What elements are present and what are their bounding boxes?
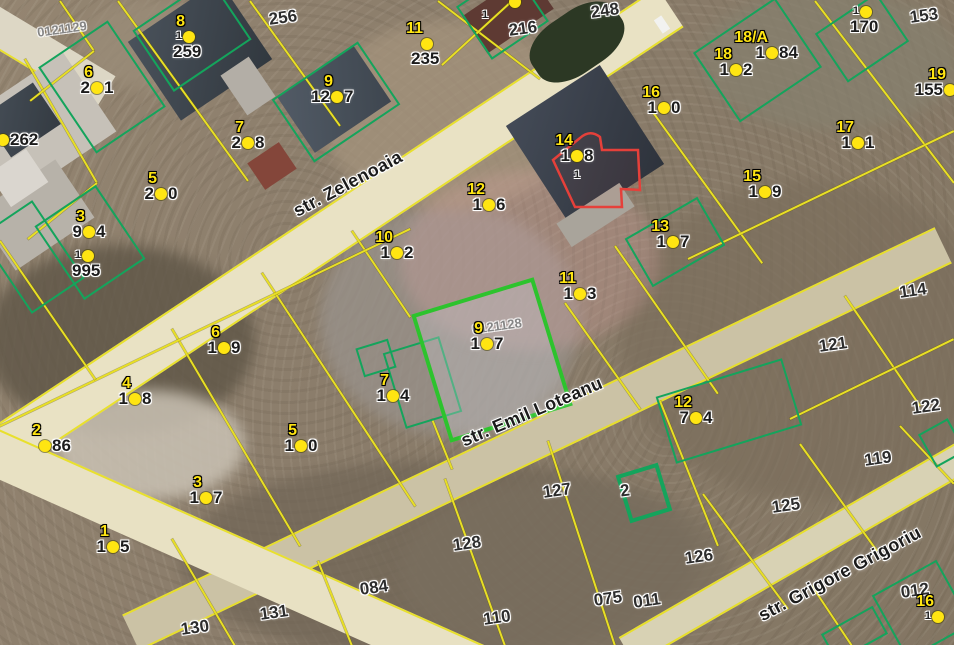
parcel-number-label: 127 [542,479,573,503]
marker-number-right: 9 [231,338,240,358]
marker-number-right: 7 [344,87,353,107]
marker-number-left: 1 [842,133,851,153]
marker-index: 2 [32,422,41,440]
marker-dot[interactable] [200,492,212,504]
marker-number-right: 4 [703,408,712,428]
marker-number-left: 1 [97,537,106,557]
marker-dot[interactable] [421,38,433,50]
marker-number-left: 1 [657,232,666,252]
marker-number-left: 2 [232,133,241,153]
parcel-number-label: 110 [482,606,512,630]
marker-dot[interactable] [331,91,343,103]
marker-dot[interactable] [571,150,583,162]
marker-number-left: 1 [473,195,482,215]
marker-dot[interactable] [759,186,771,198]
parcel-number-label: 121 [818,333,849,357]
marker-number-left: 1 [190,488,199,508]
parcel-number-label: 153 [909,4,940,28]
parcel-number-label: 256 [268,6,299,30]
marker-index: 16 [916,593,934,611]
marker-number-left: 1 [471,334,480,354]
marker-number-right: 2 [404,243,413,263]
marker-number-left: 1 [377,386,386,406]
marker-dot[interactable] [481,338,493,350]
marker-number-right: 8 [255,133,264,153]
marker-number-right: 6 [496,195,505,215]
parcel-number-label: 125 [771,494,802,518]
marker-dot[interactable] [183,31,195,43]
marker-number-right: 1 [865,133,874,153]
marker-dot[interactable] [242,137,254,149]
marker-dot[interactable] [218,342,230,354]
marker-number-right: 4 [400,386,409,406]
marker-number-right: 0 [671,98,680,118]
marker-dot[interactable] [574,288,586,300]
marker-number-right: 7 [213,488,222,508]
marker-number-right: 3 [587,284,596,304]
marker-sub-label: 1 [853,5,859,17]
marker-index: 11 [406,20,423,38]
parcel-number-label: 126 [684,545,715,569]
marker-number-right: 8 [142,389,151,409]
marker-number-right: 259 [173,42,201,62]
marker-dot[interactable] [766,47,778,59]
cadastral-map-canvas[interactable]: str. Zelenoaiastr. Emil Loteanustr. Grig… [0,0,954,645]
marker-number-right: 1 [104,78,113,98]
marker-sub-label: 1 [176,30,182,42]
marker-number-right: 5 [120,537,129,557]
marker-dot[interactable] [83,226,95,238]
marker-number-left: 155 [915,80,943,100]
marker-number-right: 7 [680,232,689,252]
marker-number-right: 9 [772,182,781,202]
marker-number-left: 2 [81,78,90,98]
marker-dot[interactable] [155,188,167,200]
parcel-number-label: 128 [452,532,483,556]
parcel-number-label: 216 [508,17,539,41]
marker-number-left: 1 [381,243,390,263]
parcel-number-label: 084 [359,576,390,600]
marker-dot[interactable] [860,6,872,18]
marker-sub-label: 1 [75,249,81,261]
marker-dot[interactable] [387,390,399,402]
parcel-number-label: 248 [590,0,621,23]
marker-number-right: 170 [850,17,878,37]
marker-number-right: 2 [743,60,752,80]
marker-dot[interactable] [129,393,141,405]
marker-number-left: 1 [564,284,573,304]
marker-number-right: 7 [494,334,503,354]
marker-number-left: 1 [119,389,128,409]
marker-dot[interactable] [82,250,94,262]
marker-number-left: 2 [145,184,154,204]
marker-dot[interactable] [39,440,51,452]
marker-dot[interactable] [730,64,742,76]
marker-number-left: 1 [720,60,729,80]
marker-dot[interactable] [658,102,670,114]
marker-dot[interactable] [483,199,495,211]
marker-number-right: 262 [10,130,38,150]
marker-number-left: 1 [285,436,294,456]
marker-index: 8 [176,13,185,31]
marker-number-left: 12 [311,87,330,107]
marker-number-left: 1 [648,98,657,118]
parcel-number-label: 114 [898,279,928,303]
parcel-number-label: 075 [593,587,624,611]
building-number-label: 1 [482,9,488,21]
parcel-number-label: 011 [632,589,662,613]
marker-number-right: 235 [411,49,439,69]
marker-number-right: 8 [584,146,593,166]
marker-dot[interactable] [391,247,403,259]
marker-number-right: 84 [779,43,798,63]
marker-dot[interactable] [667,236,679,248]
marker-dot[interactable] [107,541,119,553]
marker-number-right: 995 [72,261,100,281]
marker-dot[interactable] [852,137,864,149]
marker-dot[interactable] [295,440,307,452]
parcel-number-label: 119 [863,447,893,471]
marker-dot[interactable] [932,611,944,623]
marker-number-left: 7 [680,408,689,428]
parcel-number-label: 131 [259,601,290,625]
marker-number-right: 4 [96,222,105,242]
marker-dot[interactable] [690,412,702,424]
marker-number-left: 1 [561,146,570,166]
marker-number-left: 1 [756,43,765,63]
marker-number-left: 1 [749,182,758,202]
marker-number-left: 9 [73,222,82,242]
parcel-number-label: 122 [911,395,942,419]
marker-number-left: 1 [208,338,217,358]
marker-number-right: 86 [52,436,71,456]
marker-dot[interactable] [944,84,954,96]
marker-dot[interactable] [91,82,103,94]
marker-number-right: 0 [308,436,317,456]
building-number-label: 1 [574,169,580,181]
parcel-number-label: 130 [180,616,211,640]
marker-number-right: 0 [168,184,177,204]
marker-sub-label: 1 [925,610,931,622]
